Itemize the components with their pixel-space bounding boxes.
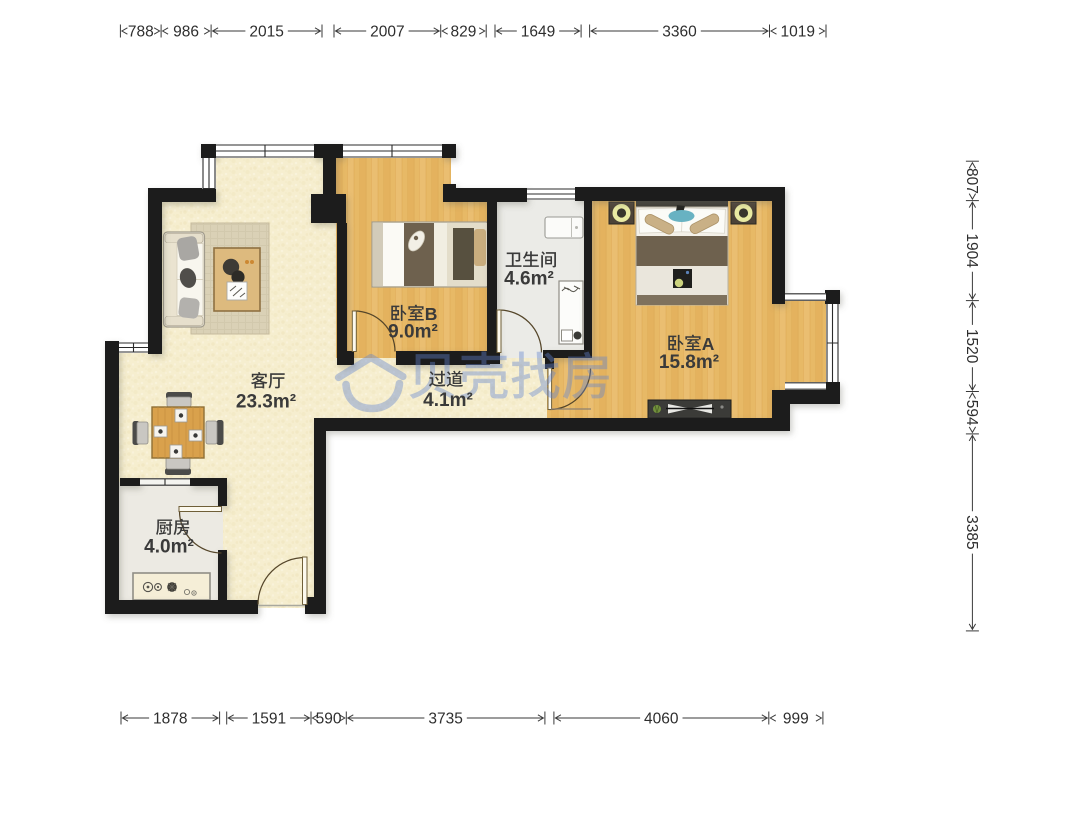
svg-text:4.0m²: 4.0m² [144,537,194,558]
svg-text:1904: 1904 [963,233,980,268]
svg-text:807: 807 [963,168,980,194]
svg-text:4060: 4060 [644,711,679,728]
svg-text:999: 999 [783,711,809,728]
svg-text:1649: 1649 [521,24,555,41]
svg-text:594: 594 [963,400,980,426]
svg-text:4.6m²: 4.6m² [504,269,554,290]
svg-text:1019: 1019 [781,24,815,41]
svg-text:A: A [702,334,715,354]
svg-text:2015: 2015 [249,24,283,41]
svg-text:23.3m²: 23.3m² [236,392,296,413]
svg-text:15.8m²: 15.8m² [659,352,719,373]
svg-text:829: 829 [450,24,476,41]
svg-text:590: 590 [316,711,342,728]
svg-text:1520: 1520 [963,329,980,364]
svg-text:1878: 1878 [153,711,187,728]
svg-text:9.0m²: 9.0m² [388,322,438,343]
svg-text:3385: 3385 [963,515,980,549]
svg-text:1591: 1591 [252,711,286,728]
svg-text:788: 788 [128,24,154,41]
svg-text:2007: 2007 [370,24,404,41]
svg-text:3360: 3360 [662,24,697,41]
svg-text:4.1m²: 4.1m² [423,390,473,411]
svg-text:3735: 3735 [428,711,462,728]
svg-text:986: 986 [173,24,199,41]
